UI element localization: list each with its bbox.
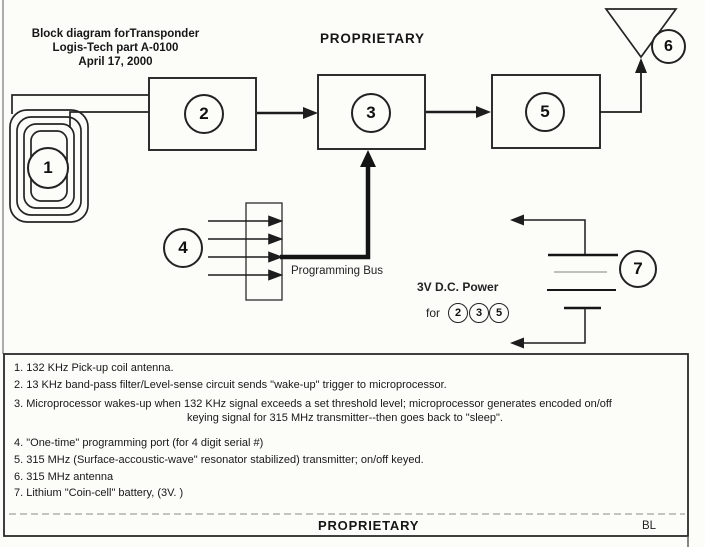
badge-number: 5 xyxy=(496,307,502,319)
arrow-3-to-5 xyxy=(426,106,491,118)
initials-bl: BL xyxy=(642,520,656,532)
title-line-2: Logis-Tech part A-0100 xyxy=(13,41,218,55)
legend-item-3: 3. Microprocessor wakes-up when 132 KHz … xyxy=(14,398,612,410)
programming-port-shape xyxy=(246,203,282,300)
power-label: 3V D.C. Power xyxy=(417,280,498,294)
badge-number: 3 xyxy=(366,103,375,123)
badge-number: 5 xyxy=(540,102,549,122)
legend-item-6: 6. 315 MHz antenna xyxy=(14,471,113,483)
block-badge-1-coil: 1 xyxy=(27,147,69,189)
arrowhead-icon xyxy=(510,215,524,226)
arrowhead-icon xyxy=(360,150,376,167)
programming-bus-label: Programming Bus xyxy=(291,265,383,277)
badge-number: 2 xyxy=(199,104,208,124)
arrowhead-icon xyxy=(635,58,647,73)
arrow-2-to-3 xyxy=(257,107,318,119)
legend-item-7: 7. Lithium "Coin-cell" battery, (3V. ) xyxy=(14,487,183,499)
legend-item-2: 2. 13 KHz band-pass filter/Level-sense c… xyxy=(14,379,447,391)
title-line-1: Block diagram forTransponder xyxy=(13,27,218,41)
badge-number: 7 xyxy=(633,259,642,279)
title-line-3: April 17, 2000 xyxy=(13,55,218,69)
programming-bus-line xyxy=(280,150,376,257)
arrowhead-icon xyxy=(476,106,491,118)
proprietary-footer: PROPRIETARY xyxy=(318,518,419,533)
block-badge-7-battery: 7 xyxy=(619,250,657,288)
power-target-badge-2: 2 xyxy=(448,303,468,323)
block-badge-6-antenna: 6 xyxy=(651,29,686,64)
badge-number: 6 xyxy=(664,38,673,56)
block-badge-3-microprocessor: 3 xyxy=(351,93,391,133)
programming-port-arrows xyxy=(208,217,281,280)
badge-number: 3 xyxy=(476,307,482,319)
scanned-block-diagram-page: Block diagram forTransponder Logis-Tech … xyxy=(0,0,705,547)
power-target-badge-5: 5 xyxy=(489,303,509,323)
badge-number: 1 xyxy=(43,158,52,178)
legend-item-4: 4. "One-time" programming port (for 4 di… xyxy=(14,437,263,449)
proprietary-header: PROPRIETARY xyxy=(320,31,425,46)
legend-item-3-continued: keying signal for 315 MHz transmitter--t… xyxy=(0,412,690,424)
arrowhead-icon xyxy=(510,338,524,349)
battery-shape xyxy=(510,215,618,349)
block-badge-4-port: 4 xyxy=(163,228,203,268)
badge-number: 2 xyxy=(455,307,461,319)
legend-item-1: 1. 132 KHz Pick-up coil antenna. xyxy=(14,362,174,374)
legend-item-5: 5. 315 MHz (Surface-accoustic-wave" reso… xyxy=(14,454,424,466)
antenna-feed-line xyxy=(600,58,647,112)
badge-number: 4 xyxy=(178,238,187,258)
arrowhead-icon xyxy=(303,107,318,119)
block-badge-5-transmitter: 5 xyxy=(525,92,565,132)
power-for-label: for xyxy=(426,306,440,320)
block-badge-2-filter: 2 xyxy=(184,94,224,134)
title-block: Block diagram forTransponder Logis-Tech … xyxy=(13,27,218,69)
power-target-badge-3: 3 xyxy=(469,303,489,323)
